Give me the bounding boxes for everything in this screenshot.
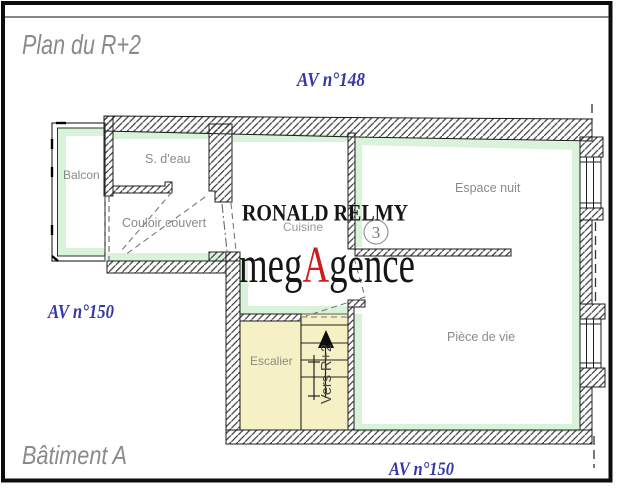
svg-text:megAgence: megAgence xyxy=(239,236,415,294)
svg-text:Espace nuit: Espace nuit xyxy=(455,181,521,195)
svg-text:Vers R+2: Vers R+2 xyxy=(319,344,335,404)
svg-text:Balcon: Balcon xyxy=(63,168,100,182)
svg-text:Pièce de vie: Pièce de vie xyxy=(447,330,515,344)
svg-text:Escalier: Escalier xyxy=(250,354,293,368)
svg-text:RONALD RELMY: RONALD RELMY xyxy=(242,201,408,226)
svg-text:AV n°148: AV n°148 xyxy=(295,69,365,91)
svg-text:AV n°150: AV n°150 xyxy=(388,459,454,480)
svg-text:Bâtiment A: Bâtiment A xyxy=(22,440,127,470)
svg-text:AV n°150: AV n°150 xyxy=(46,301,114,323)
svg-text:Plan du R+2: Plan du R+2 xyxy=(22,29,141,60)
svg-text:S. d'eau: S. d'eau xyxy=(145,152,191,166)
svg-text:Couloir couvert: Couloir couvert xyxy=(122,216,207,230)
